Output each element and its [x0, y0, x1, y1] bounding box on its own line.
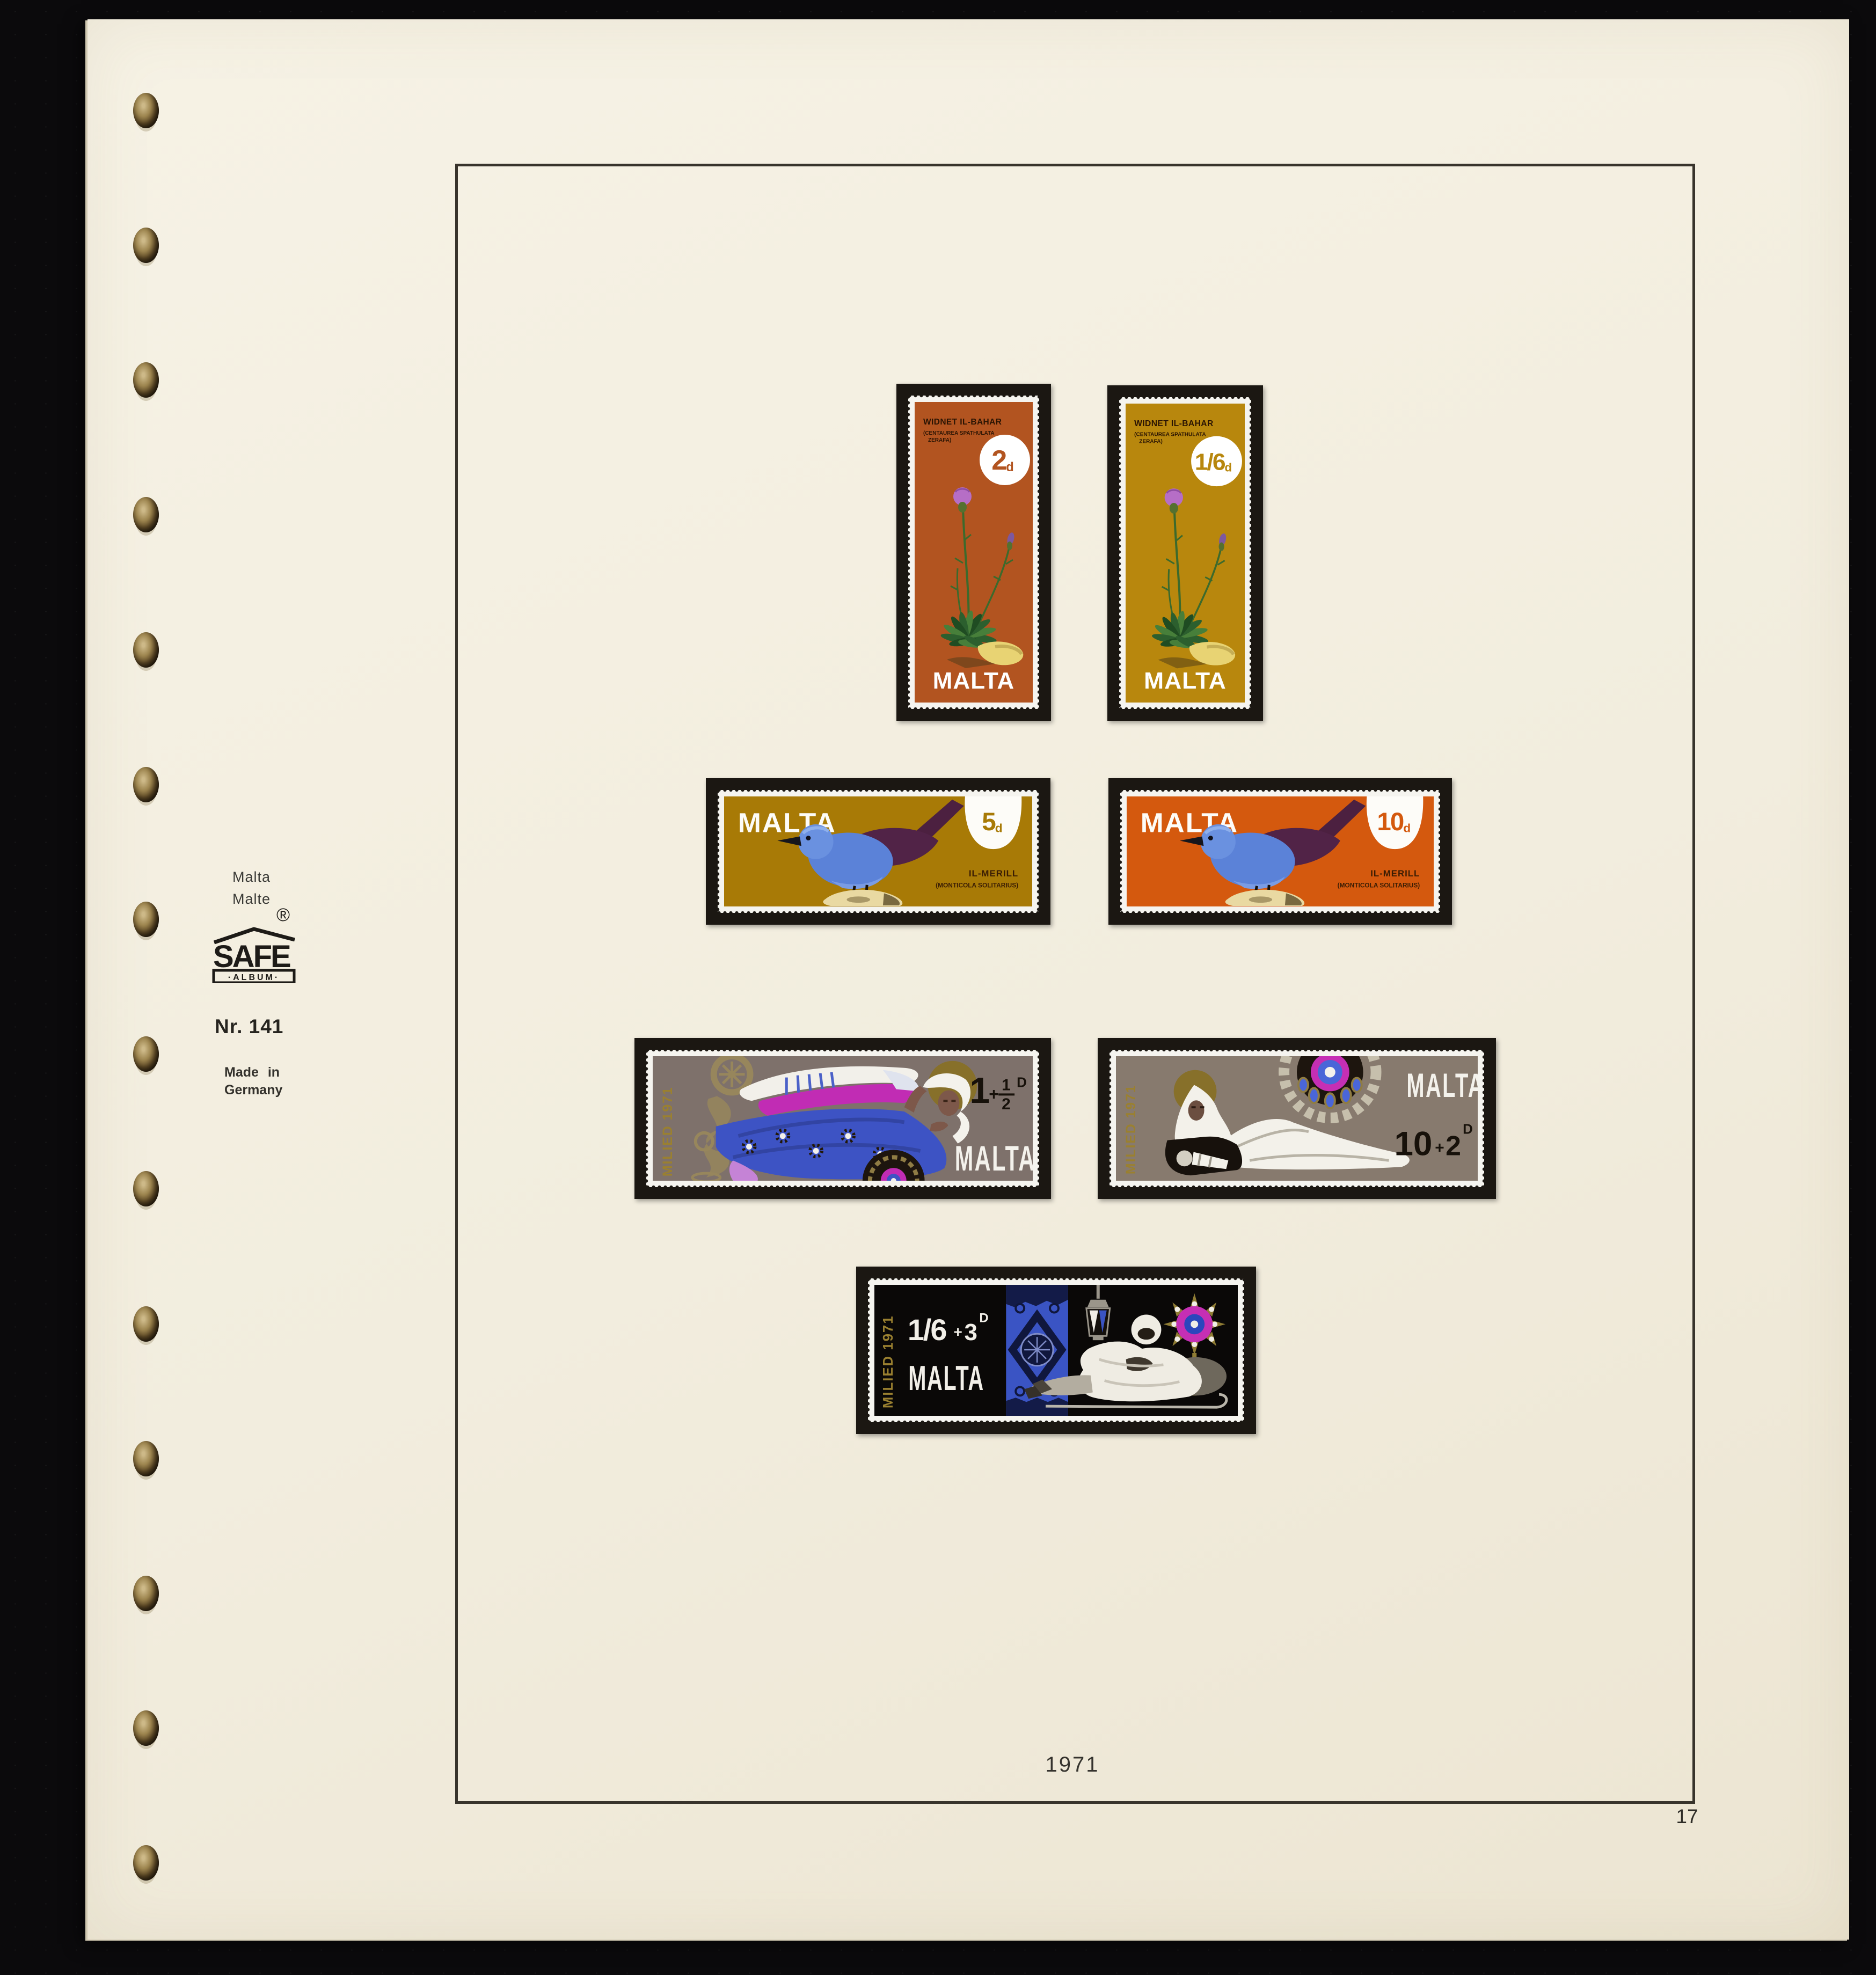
stamp-country: MALTA: [1144, 668, 1227, 694]
svg-text:D: D: [979, 1311, 988, 1325]
perforation-edge: [1241, 1277, 1247, 1424]
stamp-country-stylized: MALTA: [955, 1138, 1033, 1178]
svg-text:2: 2: [1446, 1130, 1461, 1161]
binder-hole: [133, 1171, 159, 1206]
perforation-edge: [1036, 1048, 1042, 1189]
binder-hole: [133, 228, 159, 263]
stamp-bird-5d: MALTA 5d: [718, 790, 1039, 913]
logo-album-text: ·ALBUM·: [228, 973, 280, 982]
svg-text:1: 1: [969, 1071, 990, 1111]
perforation-edge: [716, 910, 1040, 916]
binder-hole: [133, 767, 159, 802]
made-in-line1: Made in: [224, 1064, 282, 1081]
stamp-flower-1s6d-art: WIDNET IL-BAHAR (CENTAUREA SPATHULATA ZE…: [1126, 404, 1245, 703]
margin-country-label: Malta Malte: [232, 866, 271, 910]
album-ref-number: Nr. 141: [215, 1015, 283, 1038]
stamp-mount-flower-1s6d: WIDNET IL-BAHAR (CENTAUREA SPATHULATA ZE…: [1107, 385, 1263, 721]
rosette-ornament: [1284, 1056, 1376, 1118]
binder-hole: [133, 93, 159, 128]
perforation-edge: [866, 1275, 1246, 1282]
album-backdrop: { "page": { "year_label": "1971", "page_…: [0, 0, 1876, 1975]
binder-hole: [133, 1576, 159, 1611]
svg-text:D: D: [1463, 1122, 1473, 1137]
perforation-edge: [865, 1277, 871, 1424]
stamp-mount-xmas-nativity: MILIED 1971: [1098, 1038, 1496, 1199]
binder-hole: [133, 1710, 159, 1746]
bird-latin-name: (MONTICOLA SOLITARIUS): [936, 882, 1018, 889]
perforation-edge: [1437, 788, 1443, 915]
perforation-edge: [1481, 1048, 1487, 1189]
country-name-fr: Malte: [232, 888, 271, 910]
safe-album-logo-art: SAFE ·ALBUM·: [212, 925, 297, 983]
svg-text:+: +: [1435, 1139, 1444, 1157]
binder-hole: [133, 902, 159, 937]
perforation-edge: [907, 706, 1041, 712]
binder-hole: [133, 632, 159, 668]
stamp-xmas-shepherd-art: MILIED 1971 1/6 + 3 D MALTA: [874, 1285, 1238, 1416]
stamp-bird-10d: MALTA 10d: [1120, 790, 1440, 913]
svg-text:10: 10: [1394, 1125, 1432, 1163]
stamp-xmas-shepherd: MILIED 1971 1/6 + 3 D MALTA: [868, 1278, 1244, 1422]
perforation-edge: [1036, 394, 1042, 711]
stamp-title: WIDNET IL-BAHAR: [1134, 419, 1214, 428]
perforation-edge: [1118, 394, 1253, 400]
perforation-edge: [645, 1184, 1041, 1190]
perforation-edge: [1116, 396, 1122, 711]
binder-hole: [133, 1306, 159, 1342]
stamp-mount-xmas-shepherd: MILIED 1971 1/6 + 3 D MALTA: [856, 1267, 1256, 1434]
stamp-latin-2: ZERAFA): [928, 437, 951, 443]
stamp-xmas-nativity: MILIED 1971: [1109, 1050, 1484, 1187]
stamp-xmas-angel-art: MILIED 1971: [653, 1056, 1033, 1181]
svg-text:MALTA: MALTA: [955, 1138, 1033, 1178]
logo-wordmark: SAFE: [213, 939, 290, 974]
stamp-mount-bird-10d: MALTA 10d: [1108, 778, 1452, 925]
stamp-xmas-angel: MILIED 1971: [646, 1050, 1039, 1187]
stamp-bird-10d-art: MALTA 10d: [1127, 796, 1434, 906]
perforation-edge: [716, 787, 1040, 793]
bird-name: IL-MERILL: [969, 868, 1018, 879]
perforation-edge: [1035, 788, 1042, 915]
stamp-mount-bird-5d: MALTA 5d: [706, 778, 1050, 925]
stamp-latin-1: (CENTAUREA SPATHULATA: [923, 430, 995, 436]
perforation-edge: [1118, 706, 1253, 712]
perforation-edge: [1119, 910, 1442, 916]
stamp-latin-1: (CENTAUREA SPATHULATA: [1134, 432, 1206, 438]
perforation-edge: [714, 788, 721, 915]
svg-text:+: +: [989, 1084, 999, 1103]
stamp-country-stylized: MALTA: [908, 1359, 984, 1398]
svg-text:1: 1: [1002, 1077, 1011, 1094]
perforation-edge: [645, 1047, 1041, 1053]
perforation-edge: [1108, 1047, 1486, 1053]
perforation-edge: [1106, 1048, 1113, 1189]
perforation-edge: [866, 1419, 1246, 1425]
svg-text:2: 2: [1002, 1095, 1011, 1113]
stamp-latin-2: ZERAFA): [1139, 439, 1163, 445]
made-in-line2: Germany: [224, 1081, 282, 1099]
perforation-edge: [1119, 787, 1442, 793]
issue-label-vertical: MILIED 1971: [661, 1086, 675, 1176]
binder-hole: [133, 1036, 159, 1072]
svg-text:1/6: 1/6: [908, 1313, 946, 1347]
perforation-edge: [905, 394, 911, 711]
perforation-edge: [1248, 396, 1254, 711]
binder-hole: [133, 1845, 159, 1881]
binder-hole: [133, 362, 159, 398]
issue-label-vertical: MILIED 1971: [881, 1315, 896, 1408]
stamp-xmas-nativity-art: MILIED 1971: [1116, 1056, 1478, 1181]
stamp-flower-2d-art: WIDNET IL-BAHAR (CENTAUREA SPATHULATA ZE…: [915, 402, 1033, 703]
perforation-edge: [1117, 788, 1123, 915]
svg-text:MALTA: MALTA: [1406, 1067, 1478, 1105]
issue-label-vertical: MILIED 1971: [1124, 1084, 1138, 1174]
perforation-edge: [1108, 1184, 1486, 1190]
binder-hole: [133, 1441, 159, 1476]
svg-text:D: D: [1017, 1076, 1027, 1091]
page-frame: [455, 164, 1695, 1804]
bird-latin-name: (MONTICOLA SOLITARIUS): [1338, 882, 1420, 889]
stamp-country-stylized: MALTA: [1406, 1067, 1478, 1105]
stamp-bird-5d-art: MALTA 5d: [724, 796, 1032, 906]
bird-name: IL-MERILL: [1370, 868, 1420, 879]
safe-album-logo: SAFE ·ALBUM·: [212, 925, 297, 983]
page-number: 17: [1644, 1805, 1730, 1828]
svg-text:MALTA: MALTA: [908, 1359, 984, 1398]
stamp-flower-1s6d: WIDNET IL-BAHAR (CENTAUREA SPATHULATA ZE…: [1119, 397, 1251, 709]
binder-hole: [133, 497, 159, 532]
perforation-edge: [907, 392, 1041, 399]
stamp-mount-flower-2d: WIDNET IL-BAHAR (CENTAUREA SPATHULATA ZE…: [896, 384, 1051, 721]
album-page: Malta Malte SAFE ·ALBUM· ® Nr. 141 Made …: [87, 19, 1849, 1940]
country-name-en: Malta: [232, 866, 271, 888]
stamp-mount-xmas-angel: MILIED 1971: [634, 1038, 1051, 1199]
stamp-flower-2d: WIDNET IL-BAHAR (CENTAUREA SPATHULATA ZE…: [908, 396, 1039, 709]
svg-text:+: +: [954, 1323, 962, 1340]
made-in-label: Made in Germany: [224, 1064, 282, 1099]
stamp-title: WIDNET IL-BAHAR: [923, 418, 1002, 427]
stamp-country: MALTA: [933, 668, 1014, 694]
perforation-edge: [643, 1048, 649, 1189]
year-label: 1971: [455, 1753, 1690, 1777]
registered-trademark-mark: ®: [276, 905, 290, 926]
svg-text:3: 3: [965, 1319, 977, 1345]
